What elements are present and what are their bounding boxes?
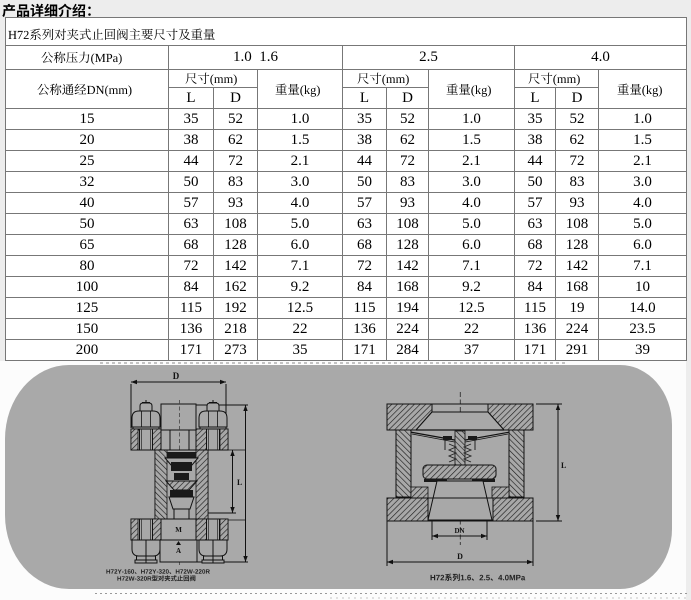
- svg-text:L: L: [561, 461, 566, 470]
- svg-text:A: A: [176, 547, 181, 555]
- svg-text:D: D: [457, 552, 463, 561]
- svg-text:D: D: [173, 371, 180, 381]
- svg-text:L: L: [237, 478, 242, 487]
- svg-text:DN: DN: [454, 527, 464, 535]
- svg-text:M: M: [175, 526, 182, 534]
